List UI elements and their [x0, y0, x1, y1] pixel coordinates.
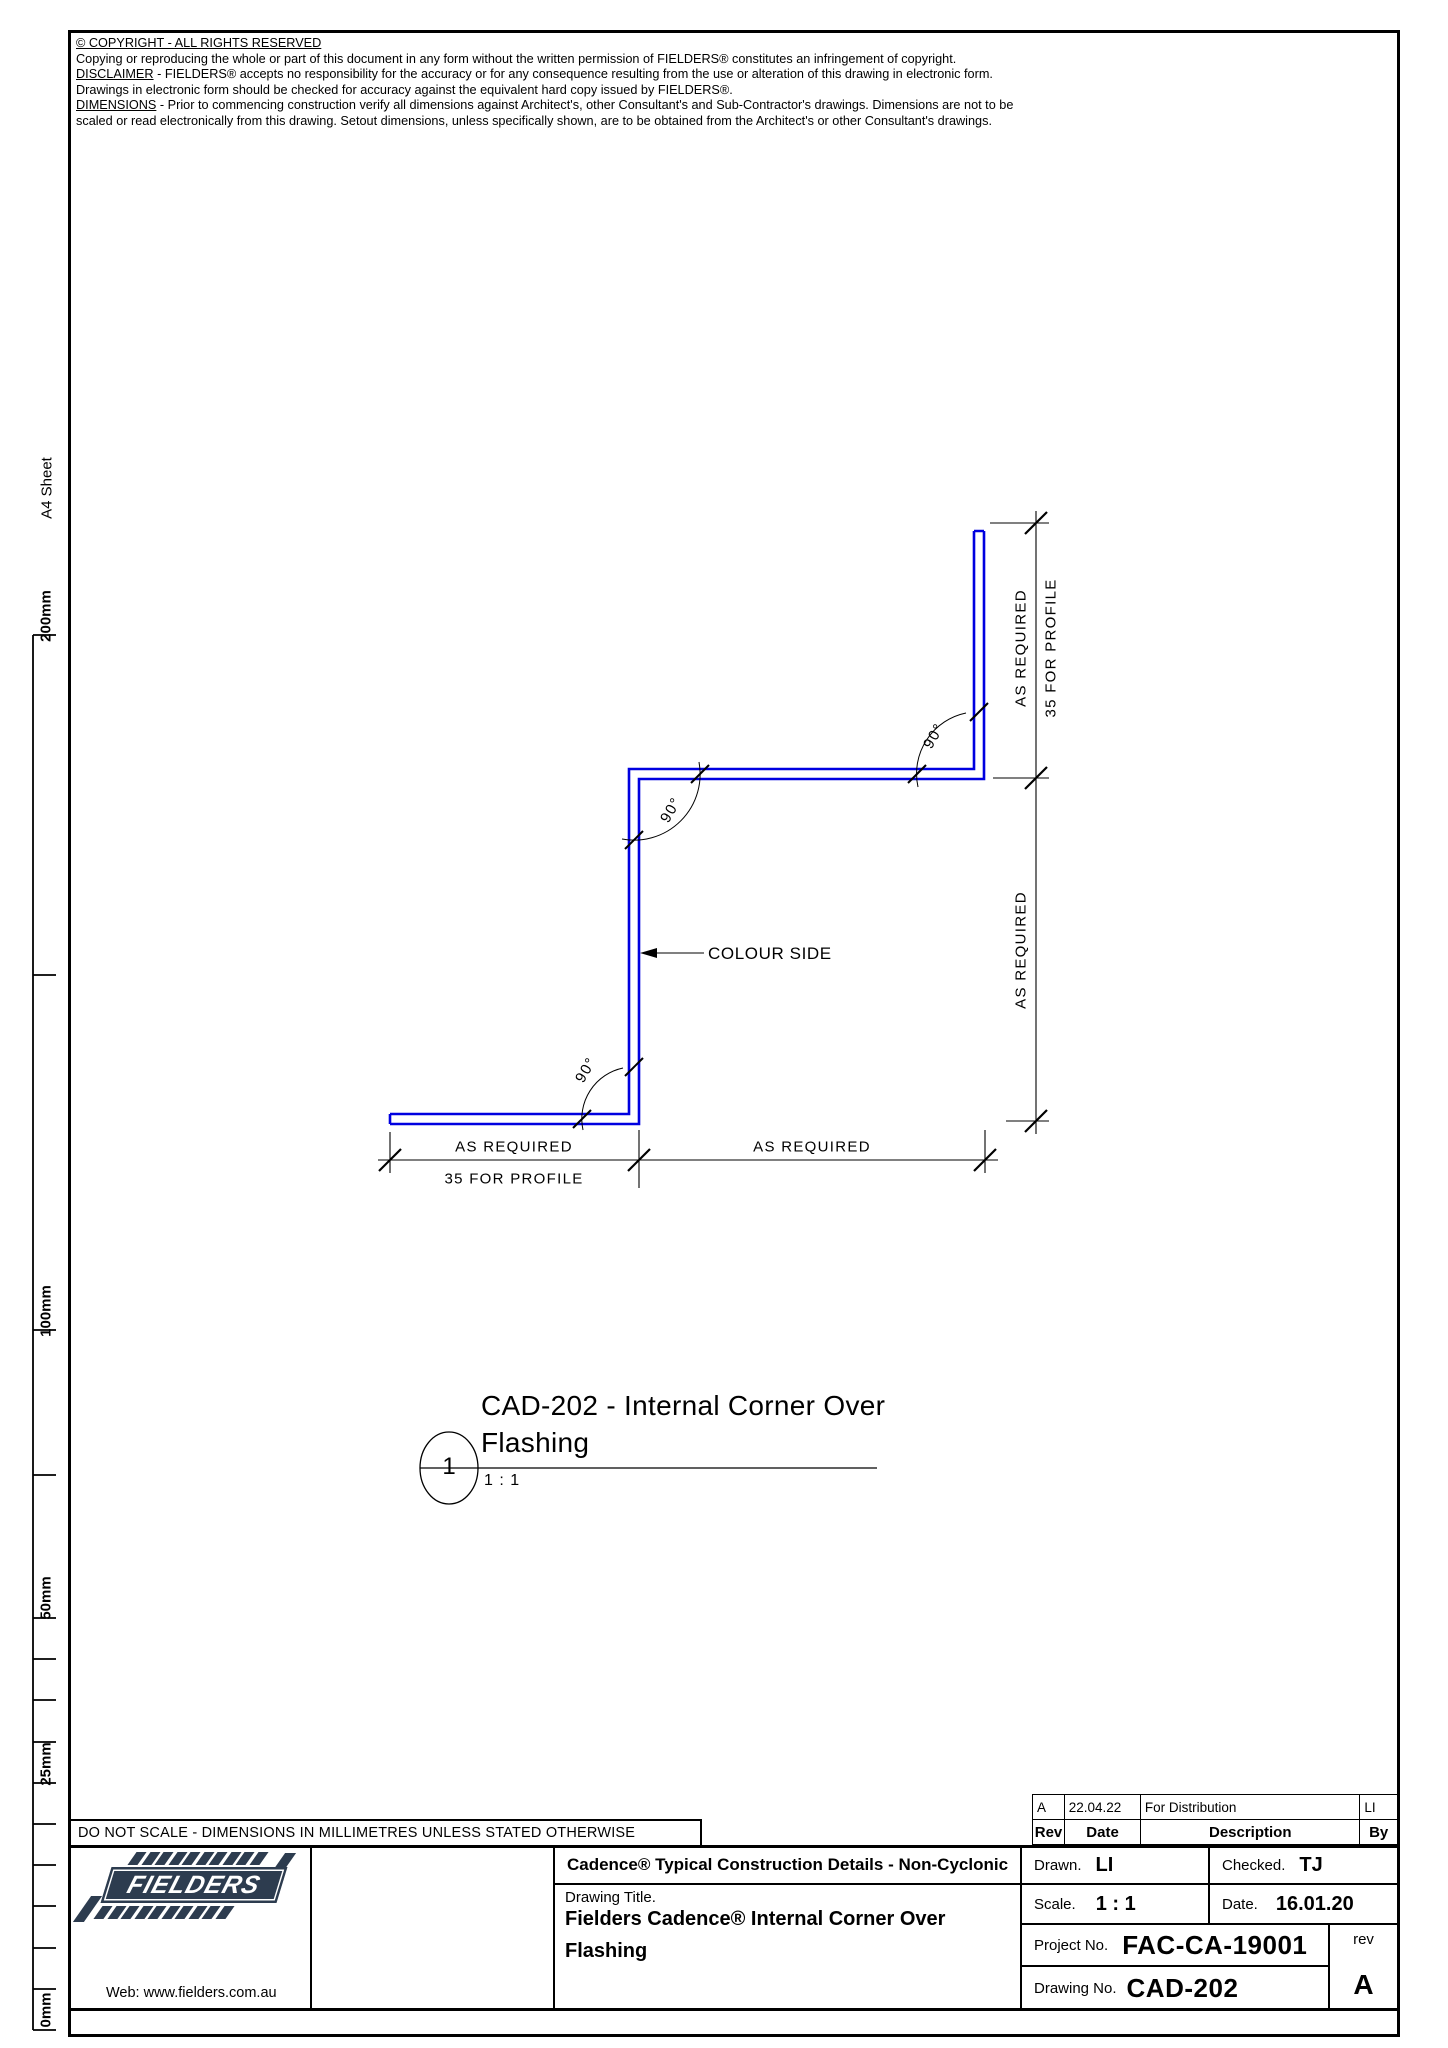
- dim-label-right-bottom: AS REQUIRED: [1013, 891, 1030, 1009]
- revision-header-row: Rev Date Description By: [1033, 1820, 1397, 1845]
- dim-label-right-top-secondary: 35 FOR PROFILE: [1043, 578, 1060, 717]
- drawing-title-cell: Drawing Title. Fielders Cadence® Interna…: [553, 1885, 1020, 2009]
- scale-value: 1 : 1: [1096, 1893, 1136, 1916]
- view-scale: 1 : 1: [484, 1472, 520, 1490]
- web-address[interactable]: Web: www.fielders.com.au: [106, 1985, 277, 2001]
- project-no-label: Project No.: [1034, 1937, 1108, 1954]
- drawn-value: LI: [1096, 1854, 1114, 1877]
- do-not-scale-note: DO NOT SCALE - DIMENSIONS IN MILLIMETRES…: [68, 1819, 702, 1847]
- view-title-line2: Flashing: [481, 1427, 589, 1459]
- checked-label: Checked.: [1222, 1857, 1285, 1874]
- view-title-line1: CAD-202 - Internal Corner Over: [481, 1390, 885, 1422]
- series-title-cell: Cadence® Typical Construction Details - …: [553, 1847, 1020, 1885]
- revision-entry-rev: A: [1033, 1795, 1065, 1820]
- date-cell: Date. 16.01.20: [1208, 1885, 1397, 1925]
- revision-header-rev: Rev: [1033, 1820, 1065, 1845]
- checked-cell: Checked. TJ: [1208, 1847, 1397, 1885]
- project-no-cell: Project No. FAC-CA-19001: [1020, 1925, 1328, 1967]
- drawn-label: Drawn.: [1034, 1857, 1082, 1874]
- revision-entry-row: A 22.04.22 For Distribution LI: [1033, 1795, 1397, 1820]
- view-number: 1: [442, 1453, 455, 1481]
- dim-label-bottom-left: AS REQUIRED: [455, 1139, 573, 1156]
- date-value: 16.01.20: [1276, 1893, 1354, 1916]
- logo-cell: FIELDERS Web: www.fielders.com.au: [70, 1847, 310, 2009]
- angle-ticks: [573, 703, 988, 1128]
- revision-entry-date: 22.04.22: [1065, 1795, 1141, 1820]
- drawn-cell: Drawn. LI: [1020, 1847, 1208, 1885]
- series-title: Cadence® Typical Construction Details - …: [567, 1855, 1008, 1875]
- rev-cell: rev A: [1328, 1925, 1397, 2009]
- drawing-no-value: CAD-202: [1127, 1973, 1239, 2004]
- dim-label-right-top: AS REQUIRED: [1013, 589, 1030, 707]
- colour-side-leader: [640, 948, 704, 958]
- drawing-canvas: [0, 0, 1448, 2048]
- fielders-logo-icon: FIELDERS: [80, 1850, 310, 1928]
- drawing-title-line2: Flashing: [565, 1940, 1020, 1963]
- colour-side-label: COLOUR SIDE: [708, 944, 832, 964]
- drawing-no-cell: Drawing No. CAD-202: [1020, 1967, 1328, 2009]
- logo-text: FIELDERS: [124, 1871, 264, 1900]
- checked-value: TJ: [1299, 1854, 1322, 1877]
- revision-entry-by: LI: [1360, 1795, 1397, 1820]
- revision-header-by: By: [1360, 1820, 1397, 1845]
- dim-label-bottom-left-secondary: 35 FOR PROFILE: [444, 1171, 583, 1188]
- dim-label-bottom-right: AS REQUIRED: [753, 1139, 871, 1156]
- revision-table: A 22.04.22 For Distribution LI Rev Date …: [1032, 1794, 1400, 1845]
- revision-header-date: Date: [1065, 1820, 1141, 1845]
- title-block-divider: [310, 1847, 312, 2009]
- drawing-title-line1: Fielders Cadence® Internal Corner Over: [565, 1908, 1020, 1931]
- scale-label: Scale.: [1034, 1896, 1076, 1913]
- project-no-value: FAC-CA-19001: [1122, 1930, 1307, 1961]
- rev-label: rev: [1353, 1931, 1374, 1948]
- rev-value: A: [1353, 1969, 1373, 2001]
- revision-header-description: Description: [1141, 1820, 1360, 1845]
- drawing-sheet: © COPYRIGHT - ALL RIGHTS RESERVED Copyin…: [0, 0, 1448, 2048]
- drawing-title-label: Drawing Title.: [565, 1889, 1020, 1906]
- revision-entry-description: For Distribution: [1141, 1795, 1360, 1820]
- flashing-profile: [390, 531, 984, 1124]
- scale-cell: Scale. 1 : 1: [1020, 1885, 1208, 1925]
- margin-ruler: [33, 635, 56, 2030]
- drawing-no-label: Drawing No.: [1034, 1980, 1117, 1997]
- date-label: Date.: [1222, 1896, 1258, 1913]
